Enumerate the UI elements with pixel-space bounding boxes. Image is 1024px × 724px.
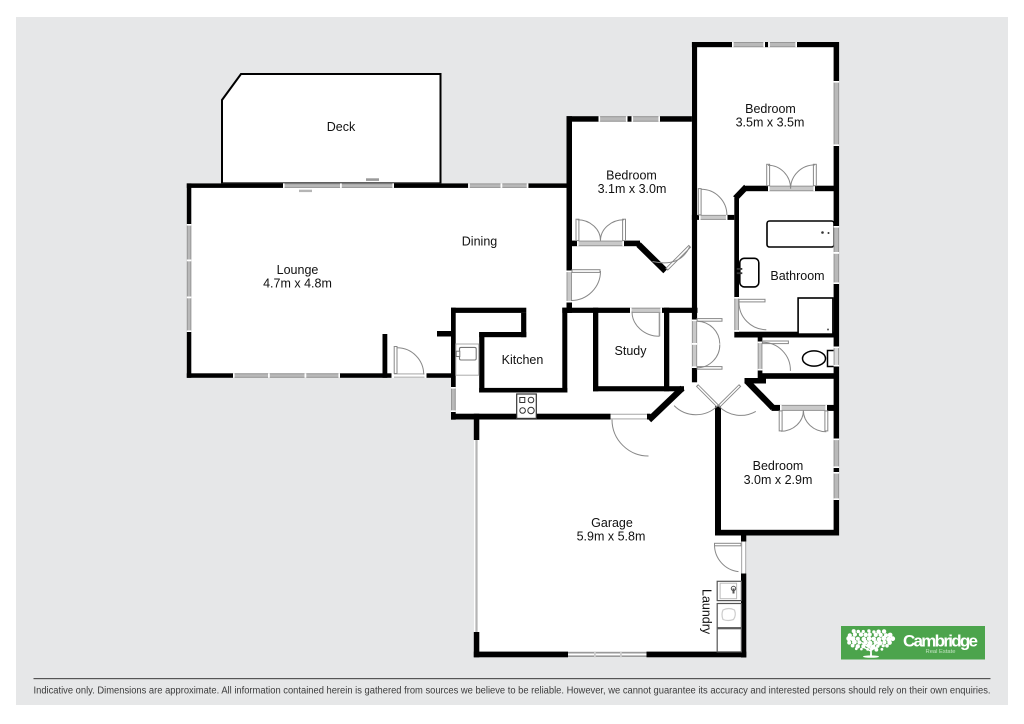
svg-text:Deck: Deck (327, 120, 356, 134)
svg-text:Bedroom: Bedroom (745, 102, 796, 116)
svg-text:Laundry: Laundry (700, 589, 714, 635)
svg-text:Real Estate: Real Estate (926, 649, 956, 655)
svg-text:Cambridge: Cambridge (903, 632, 978, 651)
svg-text:3.5m x 3.5m: 3.5m x 3.5m (736, 116, 805, 130)
svg-text:5.9m x 5.8m: 5.9m x 5.8m (577, 530, 646, 544)
svg-text:4.7m x 4.8m: 4.7m x 4.8m (263, 277, 332, 291)
svg-text:Indicative only. Dimensions ar: Indicative only. Dimensions are approxim… (34, 686, 991, 697)
svg-text:3.0m x 2.9m: 3.0m x 2.9m (744, 473, 813, 487)
svg-text:Kitchen: Kitchen (502, 353, 544, 367)
svg-text:Study: Study (615, 344, 648, 358)
svg-text:Lounge: Lounge (277, 263, 319, 277)
svg-text:Bedroom: Bedroom (753, 459, 804, 473)
svg-text:Bedroom: Bedroom (606, 169, 657, 183)
svg-text:3.1m x 3.0m: 3.1m x 3.0m (598, 182, 667, 196)
svg-text:Bathroom: Bathroom (770, 269, 824, 283)
svg-text:Dining: Dining (462, 235, 497, 249)
svg-text:Garage: Garage (591, 516, 633, 530)
